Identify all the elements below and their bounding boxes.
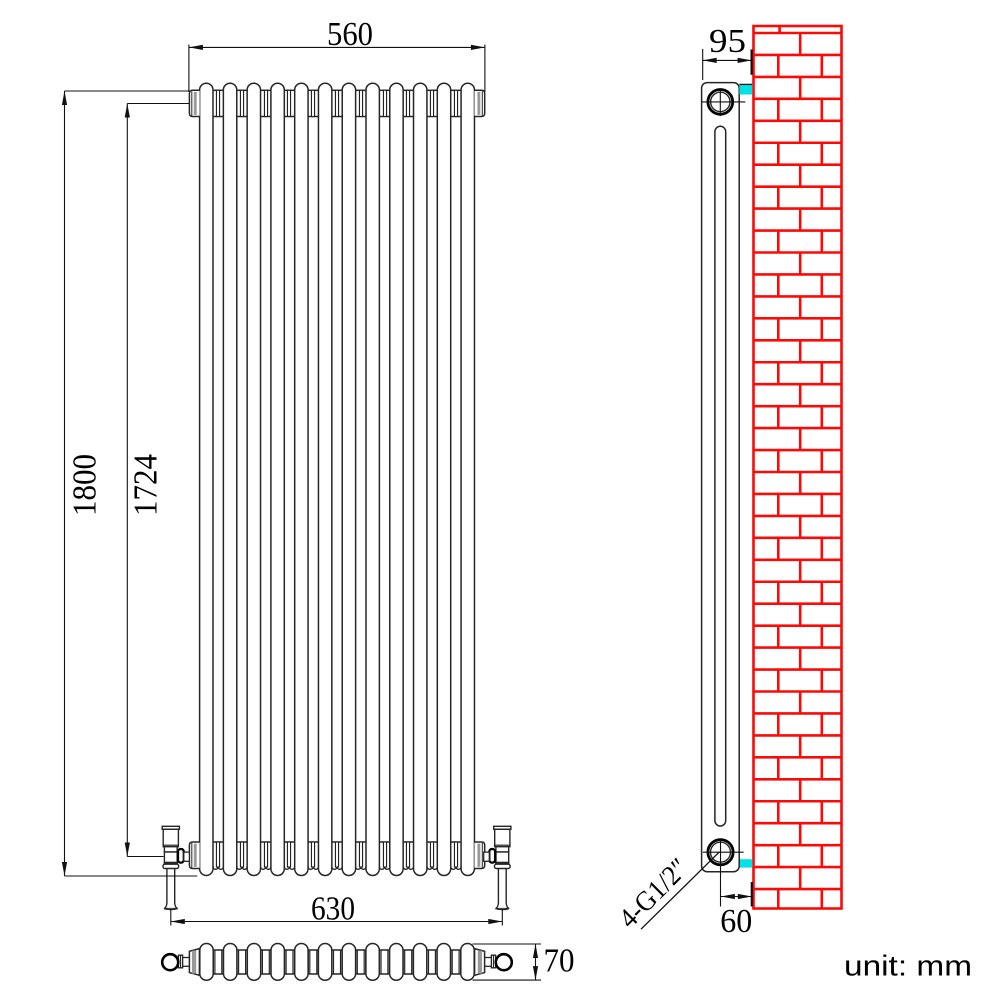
svg-text:70: 70 <box>544 943 575 980</box>
svg-text:630: 630 <box>311 891 355 928</box>
svg-text:1724: 1724 <box>128 454 165 516</box>
svg-text:560: 560 <box>327 16 373 53</box>
svg-text:95: 95 <box>709 23 746 60</box>
svg-text:unit: mm: unit: mm <box>844 951 972 983</box>
svg-text:60: 60 <box>720 903 752 940</box>
svg-text:1800: 1800 <box>67 454 104 516</box>
